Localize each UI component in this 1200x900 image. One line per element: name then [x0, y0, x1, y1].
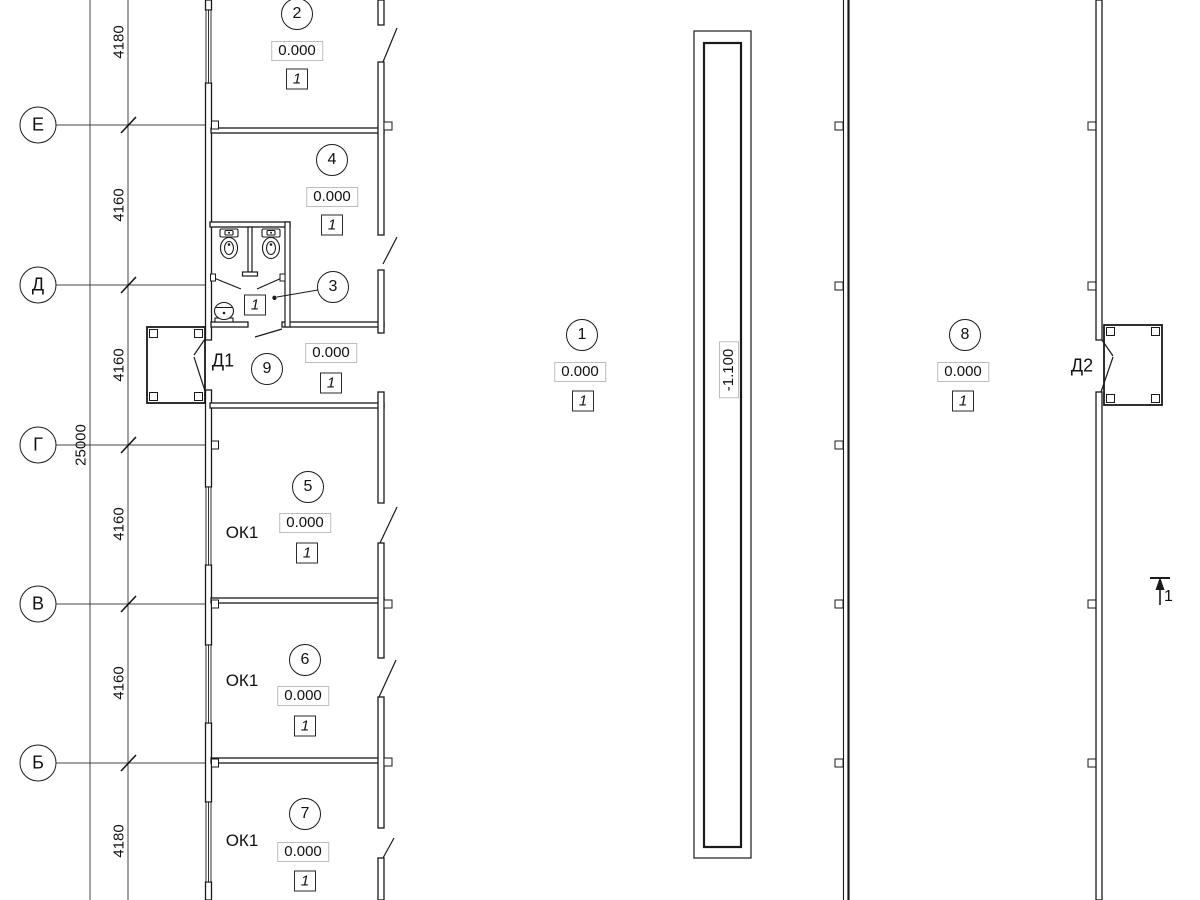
- finish-tag: 1: [294, 871, 316, 892]
- room-number: 4: [328, 151, 337, 169]
- axis-bubble-g: Г: [20, 427, 57, 464]
- elevation-mark: 0.000: [305, 343, 357, 363]
- pit-elevation-mark: -1.100: [719, 342, 739, 399]
- room-number: 9: [263, 360, 272, 378]
- axis-label: Б: [32, 753, 44, 774]
- finish-tag: 1: [321, 215, 343, 236]
- wall-tabs: [211, 121, 1097, 767]
- room-number: 1: [578, 326, 587, 344]
- left-block-right-wall: [378, 0, 384, 900]
- axis-label: Г: [33, 435, 43, 456]
- axis-bubble-b: Б: [20, 745, 57, 782]
- porch-right: [1104, 325, 1162, 405]
- pit-outline: [694, 31, 751, 858]
- room-bubble-1: 1: [566, 319, 598, 351]
- room-number: 3: [329, 278, 338, 296]
- dimension-total-label: 25000: [73, 424, 90, 466]
- window-label-ok1: ОК1: [226, 671, 259, 691]
- room-bubble-9: 9: [251, 353, 283, 385]
- door-label-d1: Д1: [212, 351, 234, 372]
- finish-tag: 1: [320, 373, 342, 394]
- window-label-ok1: ОК1: [226, 831, 259, 851]
- room-bubble-7: 7: [289, 798, 321, 830]
- axis-bubble-e: Е: [20, 107, 57, 144]
- axis-bubble-d: Д: [20, 267, 57, 304]
- dimension-label: 4180: [111, 824, 128, 857]
- elevation-mark: 0.000: [306, 187, 358, 207]
- dimension-label: 4160: [111, 188, 128, 221]
- sink-icon: [215, 303, 234, 323]
- axis-bubble-v: В: [20, 586, 57, 623]
- middle-wall: [844, 0, 849, 900]
- elevation-mark: 0.000: [277, 842, 329, 862]
- elevation-mark: 0.000: [277, 686, 329, 706]
- plan-linework: [0, 0, 1200, 900]
- room-bubble-6: 6: [289, 644, 321, 676]
- right-exterior-wall: [1096, 0, 1102, 900]
- axis-label: В: [32, 594, 44, 615]
- section-marker-label: 1: [1164, 588, 1173, 606]
- room-bubble-4: 4: [316, 144, 348, 176]
- dimension-label: 4180: [111, 25, 128, 58]
- axis-label: Д: [32, 275, 44, 296]
- floor-plan: Е Д Г В Б 4180 4160 4160 4160 4160 4180 …: [0, 0, 1200, 900]
- room3-leader: [272, 290, 318, 300]
- elevation-mark: 0.000: [554, 362, 606, 382]
- elevation-mark: 0.000: [271, 41, 323, 61]
- window-label-ok1: ОК1: [226, 523, 259, 543]
- finish-tag: 1: [952, 391, 974, 412]
- dimension-label: 4160: [111, 666, 128, 699]
- room-number: 2: [293, 5, 302, 23]
- finish-tag: 1: [294, 716, 316, 737]
- finish-tag: 1: [572, 391, 594, 412]
- left-exterior-wall: [206, 0, 212, 900]
- axis-label: Е: [32, 115, 44, 136]
- finish-tag: 1: [286, 69, 308, 90]
- elevation-mark: 0.000: [279, 513, 331, 533]
- room-number: 6: [301, 651, 310, 669]
- elevation-mark: 0.000: [937, 362, 989, 382]
- dimension-label: 4160: [111, 507, 128, 540]
- room-number: 8: [961, 326, 970, 344]
- door-label-d2: Д2: [1071, 356, 1093, 377]
- room-number: 5: [304, 478, 313, 496]
- room-number: 7: [301, 805, 310, 823]
- finish-tag: 1: [244, 295, 266, 316]
- room-bubble-5: 5: [292, 471, 324, 503]
- finish-tag: 1: [296, 543, 318, 564]
- room-bubble-8: 8: [949, 319, 981, 351]
- dimension-label: 4160: [111, 348, 128, 381]
- room-bubble-3: 3: [317, 271, 349, 303]
